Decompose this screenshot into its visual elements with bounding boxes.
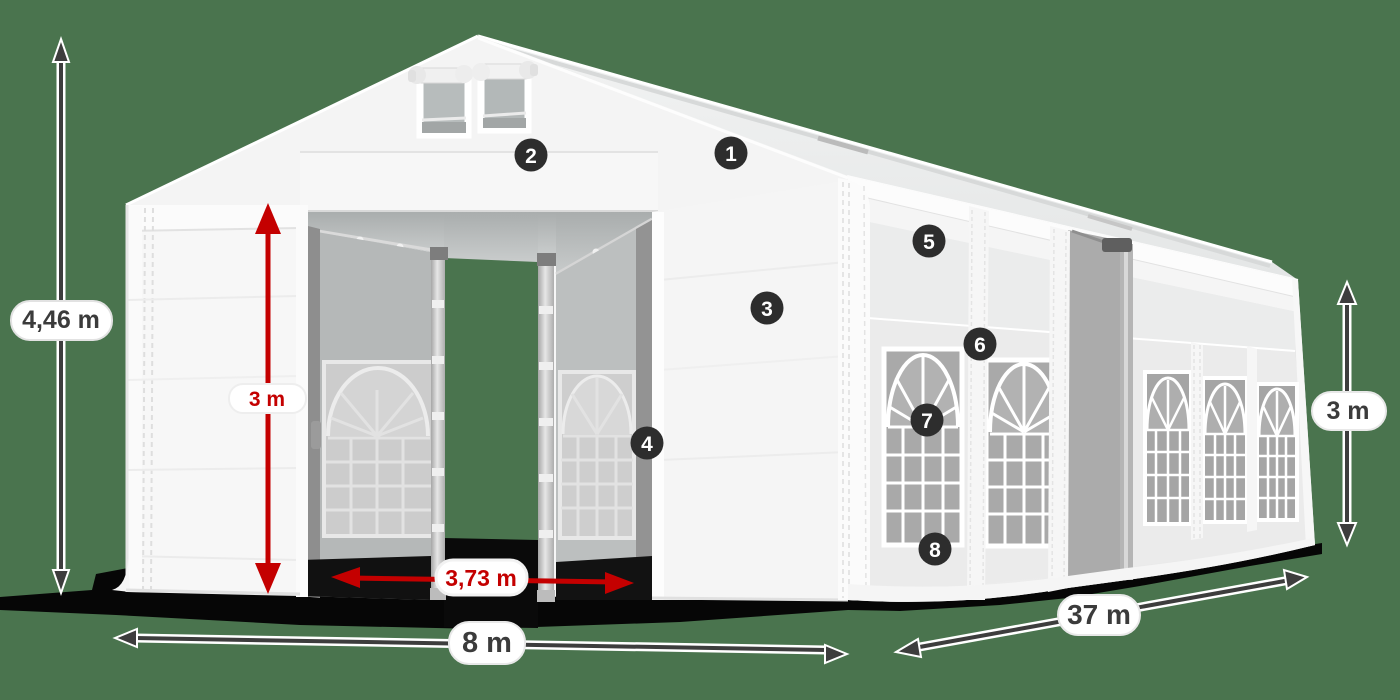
- svg-text:3 m: 3 m: [249, 388, 285, 411]
- svg-text:1: 1: [725, 143, 737, 166]
- svg-text:5: 5: [923, 231, 935, 254]
- svg-text:8: 8: [929, 539, 941, 562]
- svg-text:4: 4: [641, 433, 653, 456]
- svg-text:6: 6: [974, 334, 986, 357]
- svg-text:2: 2: [525, 145, 537, 168]
- svg-text:3,73 m: 3,73 m: [445, 565, 517, 591]
- svg-text:4,46 m: 4,46 m: [22, 306, 100, 334]
- svg-text:3 m: 3 m: [1326, 397, 1369, 425]
- svg-text:37 m: 37 m: [1067, 599, 1131, 630]
- svg-text:7: 7: [921, 410, 933, 433]
- svg-text:8 m: 8 m: [462, 627, 512, 659]
- svg-text:3: 3: [761, 298, 773, 321]
